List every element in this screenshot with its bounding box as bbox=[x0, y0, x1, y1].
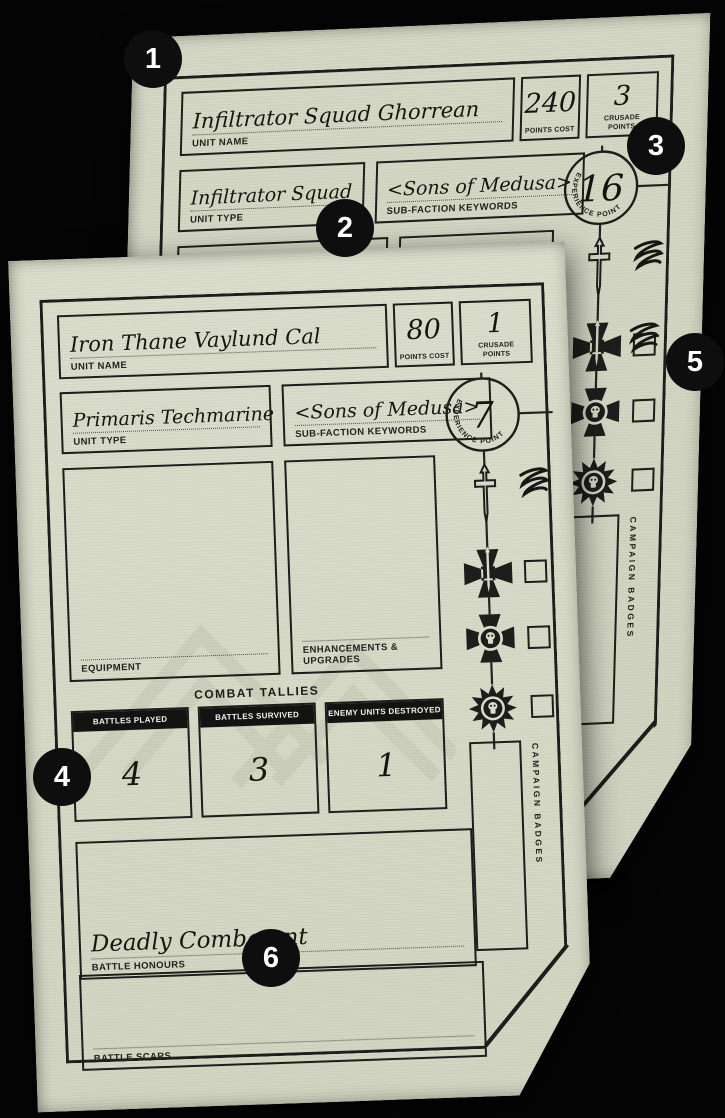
enhancements-label: ENHANCEMENTS & UPGRADES bbox=[303, 641, 431, 667]
equipment-label: EQUIPMENT bbox=[81, 657, 268, 675]
equipment-label-block: EQUIPMENT bbox=[81, 652, 268, 675]
unit-name-field[interactable]: Iron Thane Vaylund Cal UNIT NAME bbox=[57, 304, 389, 379]
pen-scribble bbox=[521, 469, 548, 495]
crusade-points-field[interactable]: 1 CRUSADE POINTS bbox=[459, 299, 533, 365]
starburst-skull-icon bbox=[569, 457, 618, 507]
points-cost-label: POINTS COST bbox=[525, 125, 575, 136]
unit-type-label: UNIT TYPE bbox=[73, 430, 260, 448]
dagger-icon bbox=[588, 237, 610, 296]
annotation-badge-1: 1 bbox=[124, 30, 182, 88]
type-row: Primaris Techmarine UNIT TYPE <Sons of M… bbox=[60, 379, 435, 454]
annotation-badge-6: 6 bbox=[242, 929, 300, 987]
cross-skull-icon bbox=[466, 614, 516, 664]
annotation-badge-3: 3 bbox=[627, 117, 685, 175]
enemy-units-destroyed-box[interactable]: ENEMY UNITS DESTROYED 1 bbox=[325, 698, 448, 813]
annotation-badge-4: 4 bbox=[33, 748, 91, 806]
rank-checkbox[interactable] bbox=[528, 626, 550, 648]
starburst-skull-icon bbox=[468, 684, 518, 734]
points-cost-field[interactable]: 80 POINTS COST bbox=[393, 302, 455, 368]
rank-checkbox[interactable] bbox=[525, 560, 547, 582]
equipment-box[interactable]: EQUIPMENT bbox=[62, 461, 280, 682]
crusade-points-value: 3 bbox=[613, 76, 631, 115]
crusade-points-value: 1 bbox=[486, 304, 505, 343]
experience-points-value: 7 bbox=[471, 395, 495, 437]
cross-skull-icon bbox=[571, 387, 620, 437]
pen-scribble bbox=[631, 324, 658, 350]
annotation-badge-5: 5 bbox=[666, 333, 724, 391]
enemy-units-destroyed-value: 1 bbox=[327, 719, 445, 811]
enhancements-label-block: ENHANCEMENTS & UPGRADES bbox=[302, 636, 430, 667]
enhancements-box[interactable]: ENHANCEMENTS & UPGRADES bbox=[284, 455, 442, 674]
cross-sword-icon bbox=[572, 319, 621, 372]
rank-checkbox[interactable] bbox=[532, 695, 554, 717]
rank-track: 7 EXPERIENCE POINTS bbox=[432, 370, 565, 752]
points-cost-value: 80 bbox=[406, 306, 442, 354]
rank-checkbox[interactable] bbox=[633, 400, 655, 422]
points-cost-field[interactable]: 240 POINTS COST bbox=[519, 74, 581, 141]
battles-played-value: 4 bbox=[73, 728, 190, 820]
equipment-row: EQUIPMENT ENHANCEMENTS & UPGRADES bbox=[62, 455, 442, 682]
points-cost-label: POINTS COST bbox=[400, 352, 450, 362]
battles-played-box[interactable]: BATTLES PLAYED 4 bbox=[71, 707, 193, 822]
crusade-points-label: CRUSADE POINTS bbox=[464, 341, 529, 360]
crusade-card-front: Iron Thane Vaylund Cal UNIT NAME 80 POIN… bbox=[8, 242, 594, 1113]
dagger-icon bbox=[474, 464, 496, 523]
battles-survived-value: 3 bbox=[200, 724, 317, 816]
campaign-badges-box[interactable] bbox=[469, 740, 528, 951]
annotation-badge-2: 2 bbox=[316, 199, 374, 257]
combat-tallies-row: BATTLES PLAYED 4 BATTLES SURVIVED 3 ENEM… bbox=[71, 698, 448, 822]
cross-sword-icon bbox=[463, 546, 513, 599]
unit-type-field[interactable]: Primaris Techmarine UNIT TYPE bbox=[60, 385, 273, 454]
rank-checkbox[interactable] bbox=[632, 469, 654, 491]
battles-survived-box[interactable]: BATTLES SURVIVED 3 bbox=[198, 703, 320, 818]
points-cost-value: 240 bbox=[524, 79, 577, 128]
unit-type-value: Primaris Techmarine bbox=[72, 405, 260, 434]
pen-scribble bbox=[635, 242, 662, 268]
